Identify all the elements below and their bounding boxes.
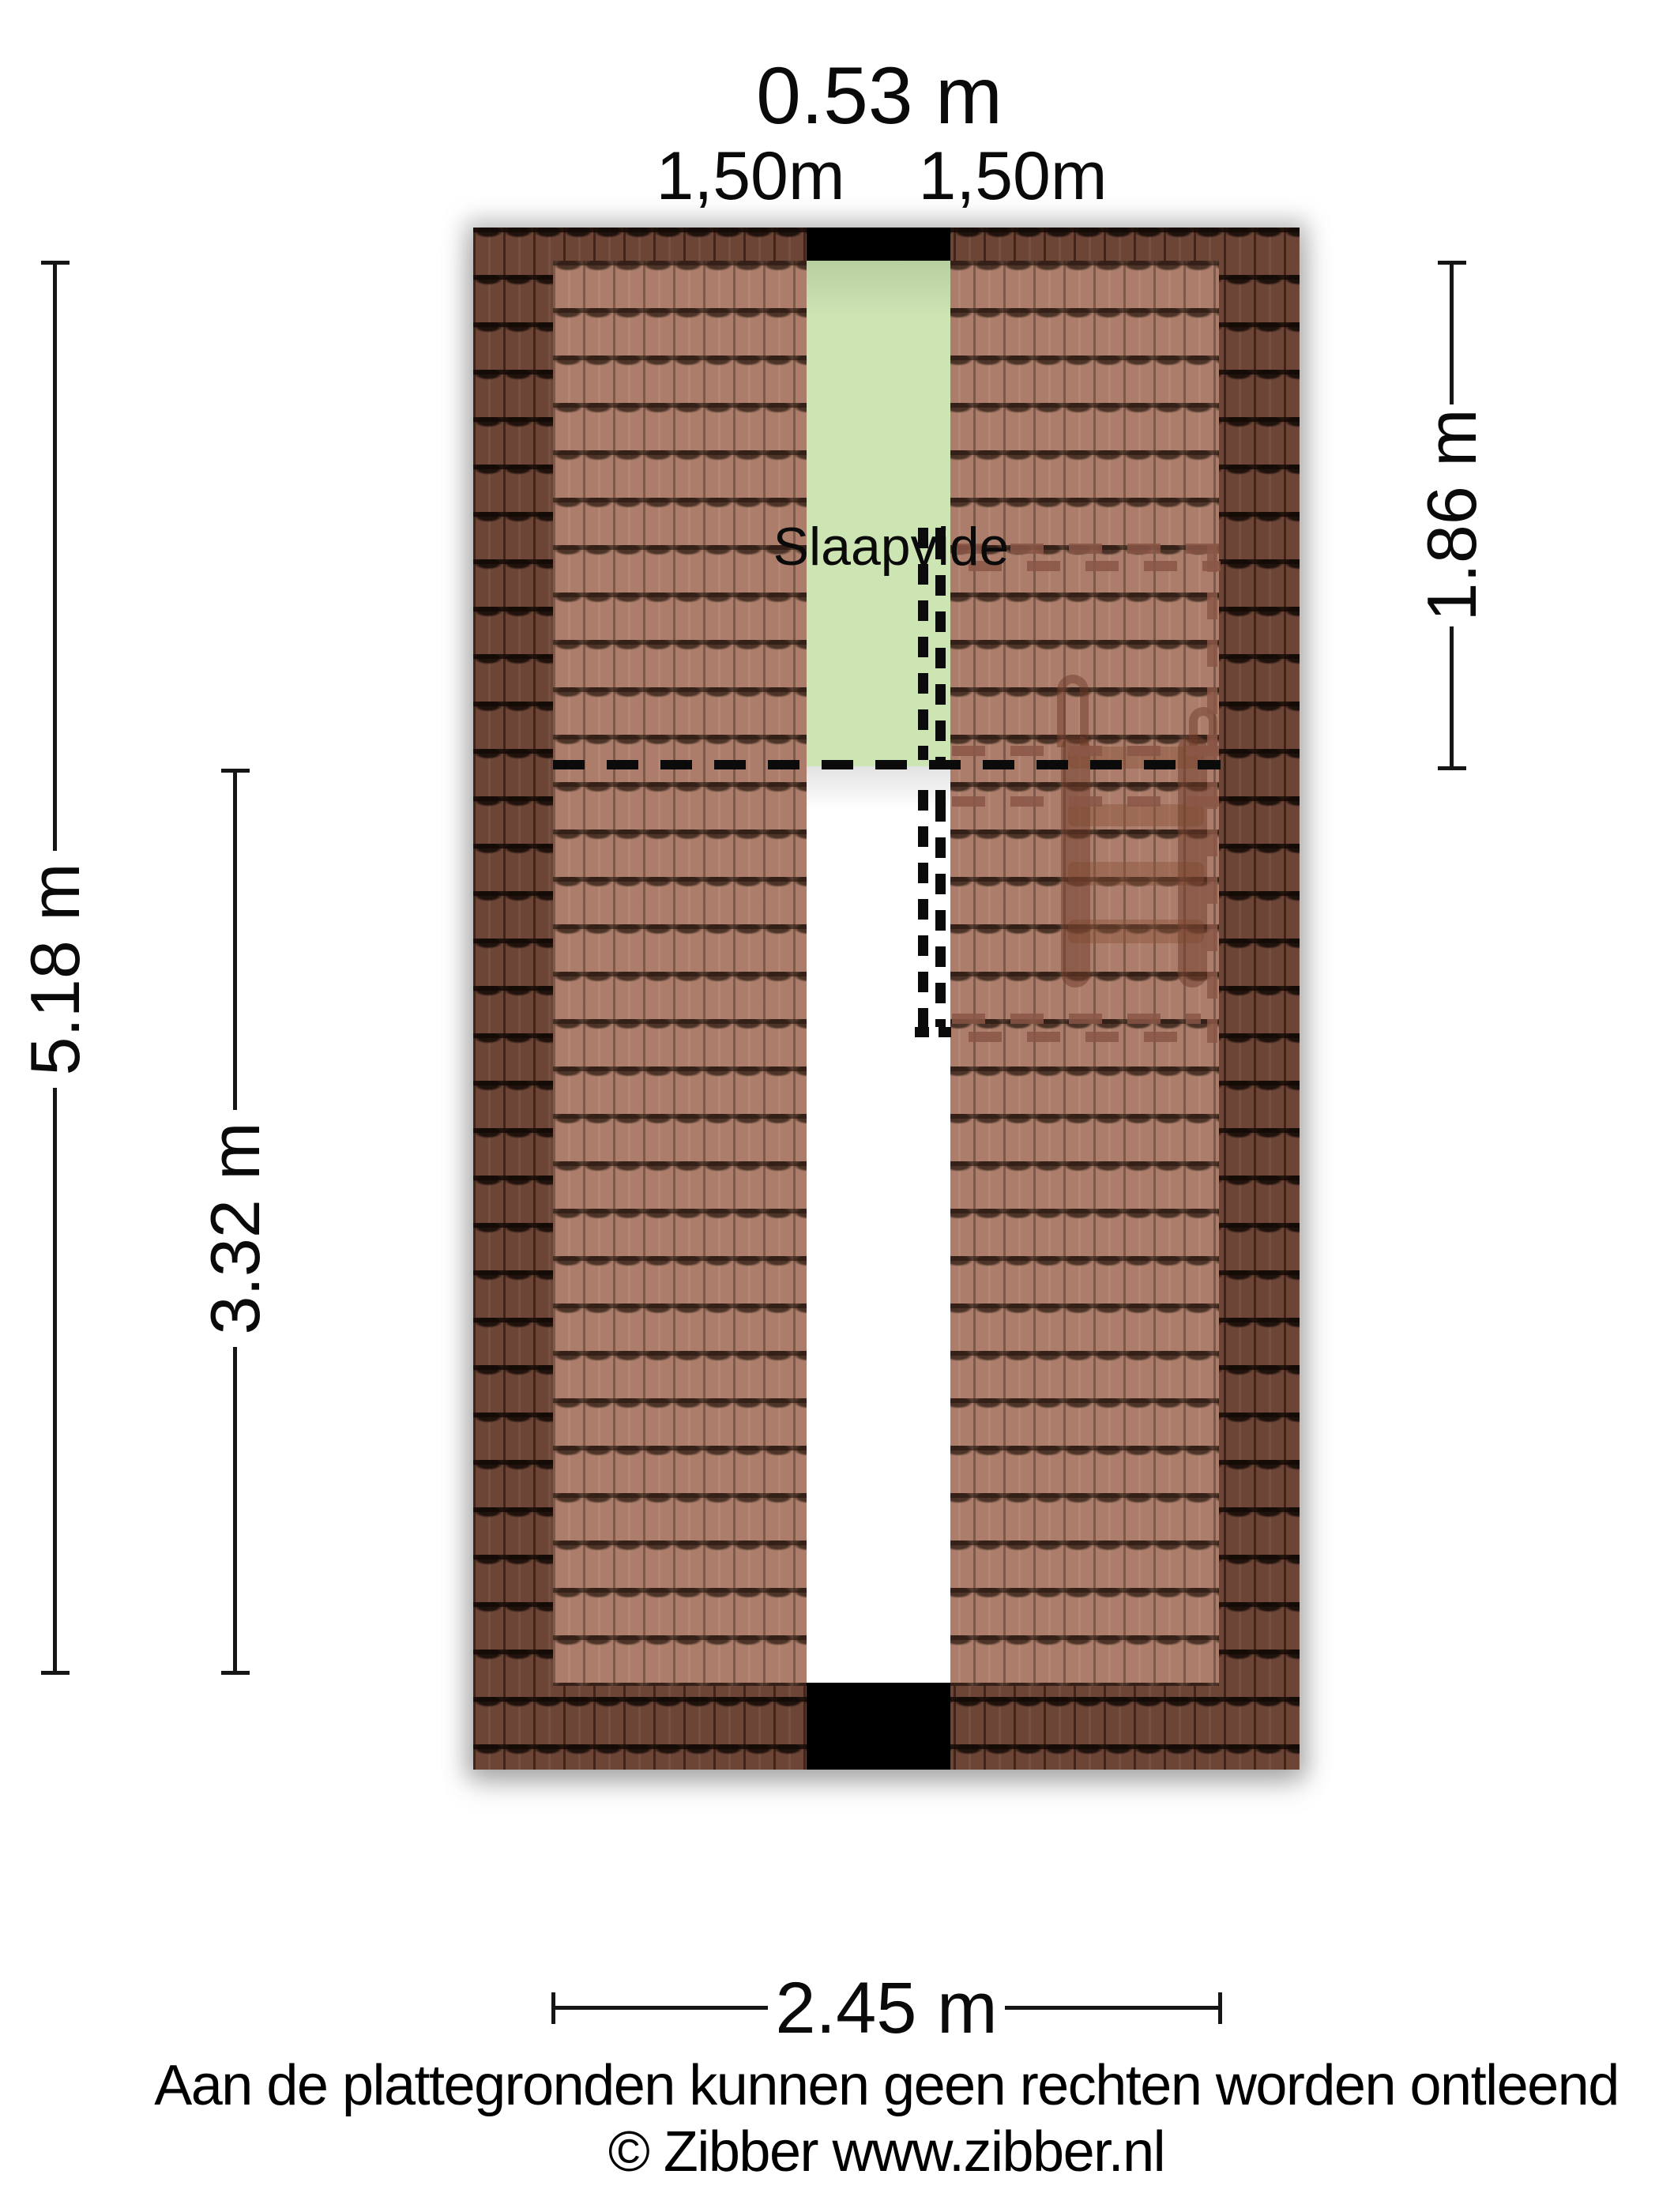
dim-332-bottom-cap [221, 1671, 250, 1675]
right-dimension-label: 1.86 m [1417, 408, 1487, 621]
bottom-dimension-label: 2.45 m [775, 1972, 997, 2045]
slaapvide-green-area [807, 261, 950, 766]
floor-plan-canvas: 0.53 m 1,50m 1,50m Slaapvide 5.18 m [0, 0, 1659, 2212]
stair-opening-hidden-right-edge [1207, 545, 1217, 1043]
left-outer-dimension-label: 5.18 m [21, 863, 90, 1075]
left-inner-dimension-label: 3.32 m [201, 1122, 270, 1334]
vide-white-strip [807, 766, 950, 1683]
ladder-left-rail [1061, 735, 1090, 987]
stair-opening-hidden-mid-edge-lower [952, 796, 1221, 807]
ladder-right-rail [1178, 735, 1207, 987]
room-label: Slaapvide [773, 520, 1010, 574]
dim-518-line-upper [53, 262, 57, 851]
upper-right-width-label: 1,50m [918, 142, 1107, 210]
dim-518-line-lower [53, 1088, 57, 1675]
stair-opening-hidden-bottom-edge-2 [969, 1032, 1201, 1042]
dim-518-bottom-cap [41, 1671, 70, 1675]
ridge-bar-bottom [807, 1683, 950, 1770]
stair-opening-left-edge-lower-b [935, 790, 946, 1027]
upper-left-width-label: 1,50m [656, 142, 845, 210]
dim-332-line-upper [233, 770, 237, 1110]
ridge-bar-top [807, 228, 950, 261]
dim-332-line-lower [233, 1347, 237, 1675]
stair-opening-hidden-mid-edge-upper [952, 746, 1221, 756]
stair-opening-left-edge-lower-a [918, 790, 928, 1027]
dim-245-line-right [1005, 2006, 1221, 2010]
dim-245-right-cap [1218, 1992, 1222, 2024]
loft-floor-edge-dashed-line [553, 760, 1221, 769]
footer-copyright: © Zibber www.zibber.nl [608, 2124, 1164, 2180]
dim-245-line-left [553, 2006, 768, 2010]
dim-186-bottom-cap [1438, 766, 1466, 770]
stair-opening-bottom-cap [915, 1027, 951, 1037]
dim-186-line-upper [1450, 262, 1454, 404]
roof-image [473, 228, 1300, 1770]
top-width-label: 0.53 m [756, 55, 1003, 136]
footer-disclaimer: Aan de plattegronden kunnen geen rechten… [154, 2057, 1619, 2114]
dim-186-line-lower [1450, 626, 1454, 770]
stair-opening-hidden-bottom-edge [952, 1014, 1201, 1024]
